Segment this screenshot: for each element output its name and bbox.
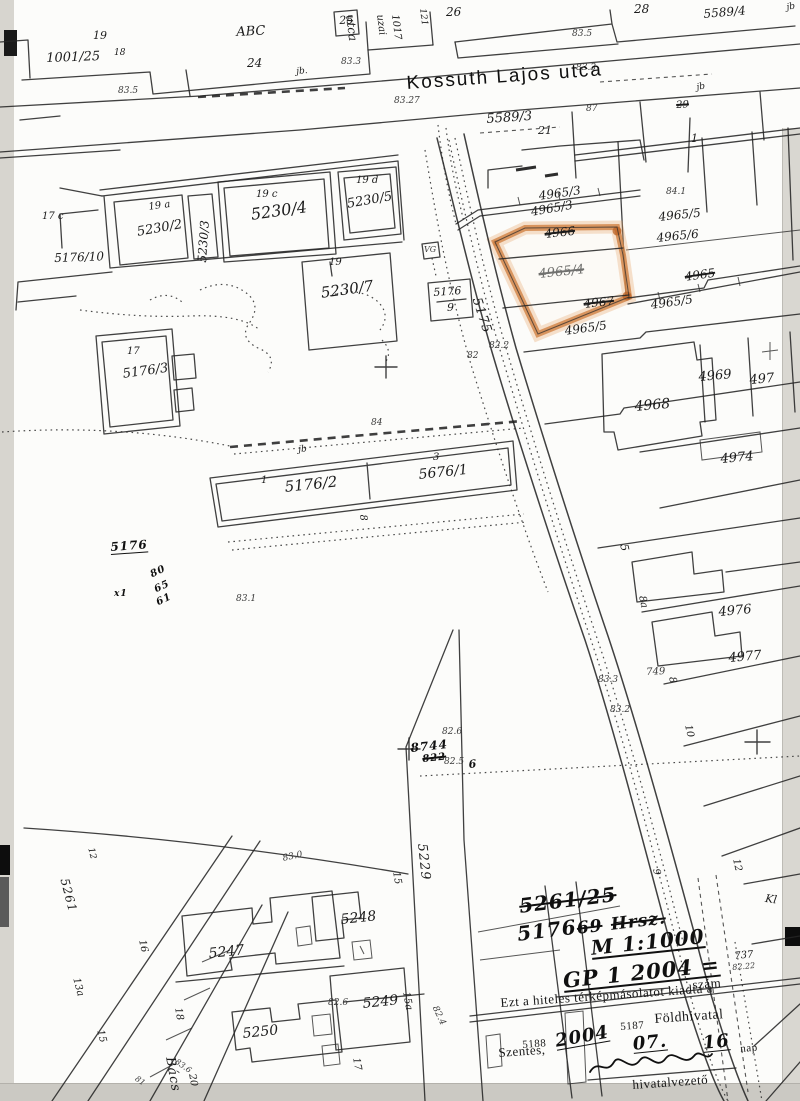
street-utca-top: utca	[344, 14, 359, 42]
elev-83-3-top: 83.3	[341, 58, 361, 67]
elev-83-2: 83.2	[610, 706, 630, 715]
label-737: 737	[734, 950, 754, 962]
label-kl-cut: Kl	[764, 893, 777, 906]
hand-6: 6	[468, 758, 478, 770]
parcel-21: 21	[538, 125, 552, 136]
parcel-28: 28	[634, 3, 649, 15]
parcel-19d: 19 d	[356, 176, 378, 186]
label-uzai: uzai	[374, 14, 386, 36]
hand-x1: x1	[114, 590, 128, 599]
parcel-5676-1: 5676/1	[418, 463, 468, 482]
hand-5176-ref: 5176	[516, 917, 578, 944]
parcel-5230-4: 5230/4	[250, 199, 308, 223]
parcel-1001-25: 1001/25	[46, 50, 100, 65]
hand-5176: 5176	[110, 538, 148, 553]
hand-day-16: 16	[702, 1032, 731, 1053]
label-jb-center: jb	[298, 445, 307, 455]
label-abc: ABC	[236, 24, 266, 39]
parcel-4965-5-top: 4965/5	[658, 207, 701, 223]
housenum-12-bl: 12	[85, 847, 97, 860]
street-kossuth-lajos-utca: Kossuth Lajos utca	[406, 60, 603, 93]
housenum-3-strip: 3	[433, 453, 439, 463]
parcel-4974: 4974	[720, 450, 754, 466]
street-5229: 5229	[415, 843, 432, 881]
housenum-15-center: 15	[390, 871, 402, 885]
parcel-19a: 19 a	[148, 200, 171, 213]
housenum-15-left: 15	[94, 1029, 107, 1044]
hand-month-07: 07.	[632, 1032, 668, 1053]
parcel-5176-2: 5176/2	[284, 474, 338, 494]
parcel-5589-3: 5589/3	[486, 110, 533, 126]
housenum-8: 8	[666, 676, 677, 684]
elev-83-5-left: 83.5	[118, 87, 138, 96]
hand-80: 80	[149, 564, 168, 580]
housenum-8-strip: 8	[357, 514, 368, 522]
elev-83-3-c: 83.3	[598, 676, 618, 685]
parcel-5176-9-denominator: 9	[447, 302, 454, 313]
elev-84: 84	[371, 419, 382, 428]
parcel-5176-10: 5176/10	[54, 250, 104, 264]
parcel-5589-4: 5589/4	[703, 4, 746, 20]
housenum-20: 20	[186, 1073, 198, 1087]
housenum-16: 16	[136, 939, 148, 954]
parcel-5230-2: 5230/2	[136, 218, 183, 239]
parcel-19c: 19 c	[256, 190, 278, 200]
elev-82-6: 82.6	[442, 728, 462, 737]
housenum-8a: 8a	[636, 595, 648, 609]
elev-82-22: 82.22	[732, 962, 756, 972]
elev-83-5-mid: 83.5	[572, 30, 592, 39]
hand-scale: M 1:1000	[590, 926, 706, 958]
housenum-15a: 15a	[400, 991, 413, 1011]
elev-87: 87	[586, 105, 597, 114]
housenum-17: 17	[350, 1057, 362, 1071]
stamp-hivatalvezeto: hivatalvezető	[632, 1073, 709, 1091]
elev-82: 82	[467, 352, 478, 361]
street-5261: 5261	[58, 877, 79, 913]
parcel-4969: 4969	[698, 368, 732, 384]
parcel-5247: 5247	[208, 943, 245, 961]
elev-84-1: 84.1	[666, 188, 686, 197]
label-jb-top: jb.	[296, 67, 308, 77]
parcel-4965-3-b: 4965/3	[530, 199, 574, 218]
parcel-4977: 4977	[728, 649, 762, 665]
parcel-19-top: 19	[93, 30, 107, 41]
parcel-24: 24	[247, 57, 262, 69]
map-label-layer: 191001/2518ABC2425utca1017uzai1212628558…	[0, 0, 800, 1101]
label-jb-top-right: jb	[786, 3, 796, 13]
elev-83-27: 83.27	[394, 97, 420, 106]
parcel-4965-6: 4965/6	[656, 228, 699, 244]
housenum-12: 12	[730, 858, 742, 873]
hand-year-2004: 2004	[554, 1024, 610, 1051]
elev-81: 81	[133, 1075, 146, 1087]
parcel-17-of-5176-3: 17	[127, 347, 140, 357]
parcel-5176-3: 5176/3	[122, 362, 169, 381]
parcel-4968: 4968	[634, 397, 671, 414]
elev-83-0: 83.0	[282, 851, 303, 864]
parcel-29: 29	[676, 100, 689, 111]
stamp-5187: 5187	[620, 1020, 645, 1033]
label-1017: 1017	[389, 14, 402, 40]
housenum-10: 10	[682, 724, 694, 739]
parcel-26: 26	[446, 6, 461, 18]
parcel-4966: 4966	[544, 225, 576, 240]
scanned-map-page: 191001/2518ABC2425utca1017uzai1212628558…	[0, 0, 800, 1101]
stamp-nap: nap	[740, 1043, 758, 1055]
parcel-4965-4-highlighted: 4965/4	[538, 263, 585, 281]
label-vg: VG	[424, 246, 436, 254]
parcel-1001-25-sub: 18	[114, 49, 125, 58]
stamp-foldhivatal: Földhivatal	[654, 1008, 724, 1027]
housenum-13a: 13a	[70, 977, 84, 998]
hand-5261-25: 5261/25	[518, 884, 618, 916]
elev-82-5: 82.5	[444, 758, 464, 767]
parcel-5230-5: 5230/5	[346, 190, 393, 211]
parcel-4965-5-right: 4965/5	[650, 293, 693, 311]
parcel-5176-9-numerator: 5176	[433, 285, 462, 298]
parcel-1-right: 1	[691, 133, 698, 144]
parcel-4967: 4967	[583, 295, 615, 310]
elev-82-6-b: 82.6	[328, 999, 348, 1008]
housenum-5: 5	[618, 543, 630, 552]
parcel-5230-7: 5230/7	[320, 279, 374, 301]
housenum-9: 9	[650, 868, 661, 876]
housenum-1-strip: 1	[261, 476, 267, 486]
label-jb-right: jb	[696, 83, 706, 93]
elev-82-4: 82.4	[430, 1005, 447, 1027]
parcel-19-of-5230-7: 19	[329, 258, 342, 268]
label-749: 749	[646, 667, 666, 678]
stamp-szentes: Szentes,	[498, 1043, 546, 1059]
parcel-5230-3: 5230/3	[196, 220, 211, 263]
parcel-17c: 17 c	[42, 212, 64, 222]
parcel-497-cut: 497	[749, 372, 775, 387]
street-5175: 5175	[470, 296, 494, 335]
label-121: 121	[417, 8, 428, 26]
parcel-4965-struck: 4965	[684, 267, 716, 283]
parcel-4976: 4976	[718, 603, 752, 619]
housenum-18: 18	[172, 1007, 184, 1021]
elev-83-1: 83.1	[236, 595, 256, 604]
parcel-4965-5-bottom: 4965/5	[564, 319, 607, 337]
elev-82-2: 82.2	[489, 342, 509, 351]
parcel-5249: 5249	[362, 993, 399, 1011]
parcel-5248: 5248	[340, 909, 377, 927]
parcel-5250: 5250	[242, 1023, 279, 1041]
